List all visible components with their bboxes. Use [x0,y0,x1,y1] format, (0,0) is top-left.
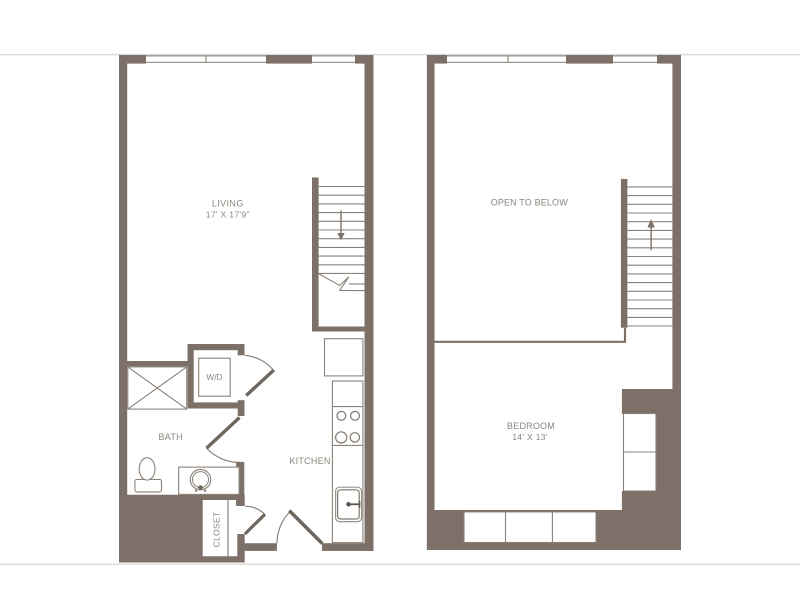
svg-text:KITCHEN: KITCHEN [289,456,330,466]
svg-text:17' X 17'9": 17' X 17'9" [206,209,250,219]
svg-text:CLOSET: CLOSET [211,512,221,548]
svg-text:W/D: W/D [206,372,222,382]
svg-text:LIVING: LIVING [212,198,244,208]
svg-text:BATH: BATH [159,432,183,442]
svg-text:14' X 13': 14' X 13' [512,432,548,442]
svg-text:OPEN TO BELOW: OPEN TO BELOW [491,197,568,207]
svg-text:BEDROOM: BEDROOM [507,421,555,431]
